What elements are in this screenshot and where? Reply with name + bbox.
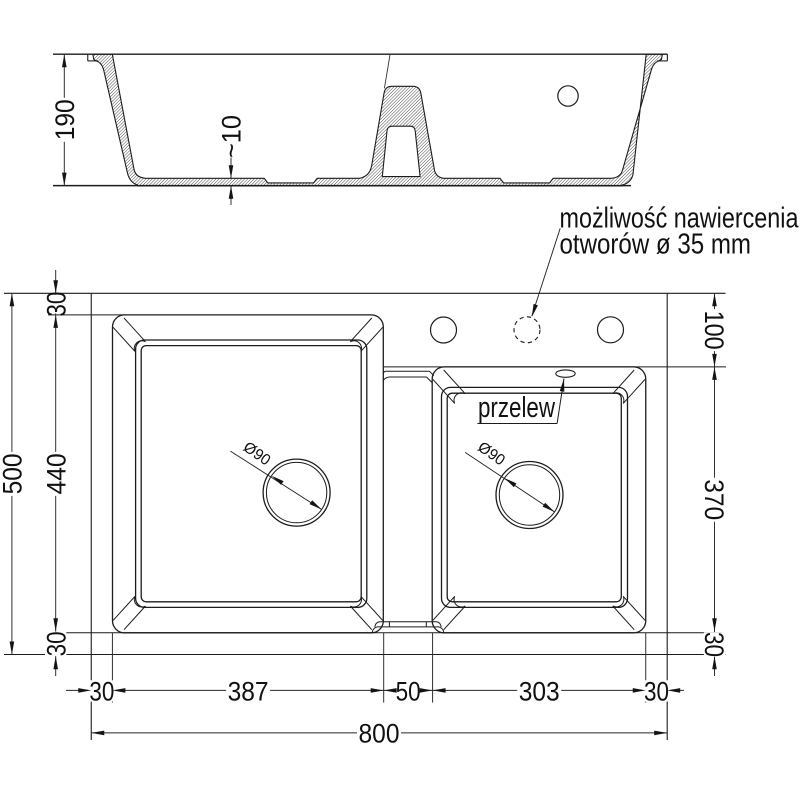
svg-text:190: 190 [50,99,80,140]
svg-text:440: 440 [41,453,71,494]
svg-text:otworów ø 35 mm: otworów ø 35 mm [560,229,752,261]
svg-text:303: 303 [519,677,560,707]
svg-text:30: 30 [699,632,729,657]
svg-text:500: 500 [0,453,28,494]
svg-text:100: 100 [699,311,729,350]
svg-text:30: 30 [644,677,669,707]
svg-text:przelew: przelew [478,392,556,424]
svg-text:30: 30 [41,631,71,656]
svg-text:370: 370 [699,479,729,520]
svg-text:30: 30 [89,677,114,707]
svg-text:800: 800 [359,719,400,749]
svg-text:387: 387 [228,677,269,707]
svg-text:50: 50 [396,677,421,707]
svg-text:30: 30 [41,292,71,317]
svg-text:~10: ~10 [217,115,247,158]
